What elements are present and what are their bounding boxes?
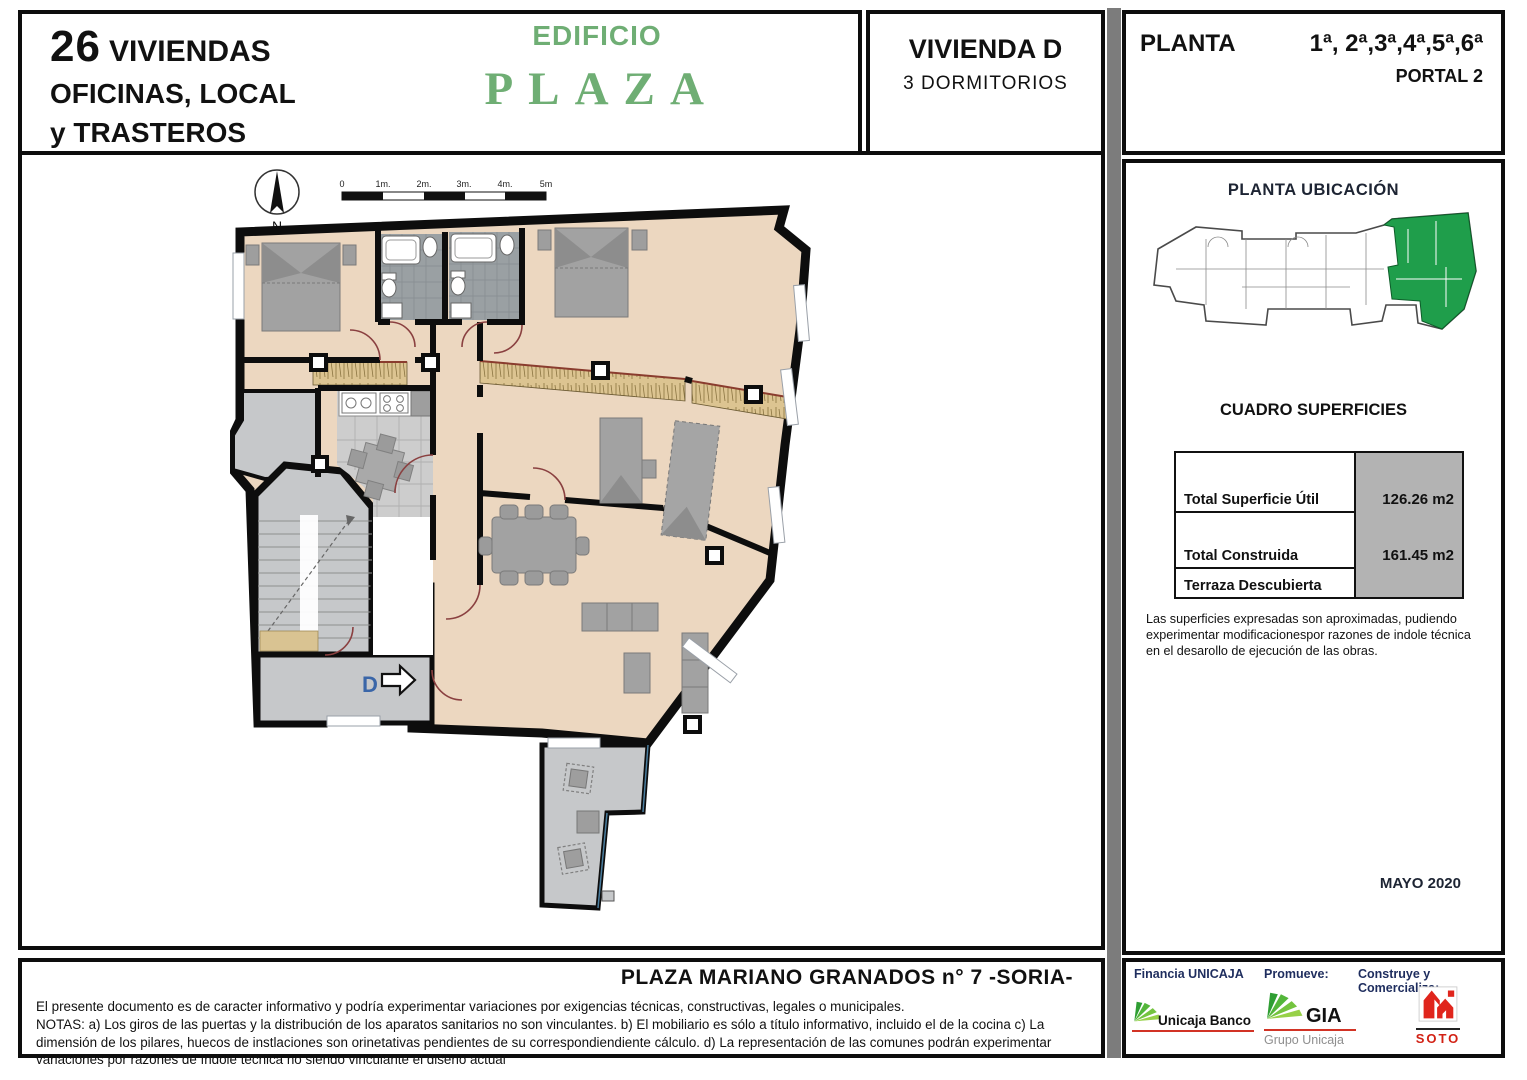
terrace-drain bbox=[602, 891, 614, 901]
surfaces-title: CUADRO SUPERFICIES bbox=[1126, 401, 1501, 420]
svg-text:4m.: 4m. bbox=[497, 179, 512, 189]
portal-label: PORTAL 2 bbox=[1126, 58, 1501, 87]
location-title: PLANTA UBICACIÓN bbox=[1126, 181, 1501, 200]
unicaja-banco-logo: Unicaja Banco bbox=[1132, 998, 1254, 1032]
financia-label: Financia UNICAJA bbox=[1134, 967, 1244, 981]
svg-text:0: 0 bbox=[339, 179, 344, 189]
project-line2: OFICINAS, LOCAL bbox=[50, 79, 296, 108]
header-project-box: 26VIVIENDAS OFICINAS, LOCAL y TRASTEROS … bbox=[18, 10, 862, 155]
project-line1: VIVIENDAS bbox=[109, 35, 271, 68]
bathroom-2 bbox=[449, 232, 520, 320]
plan-sheet: 26VIVIENDAS OFICINAS, LOCAL y TRASTEROS … bbox=[0, 0, 1527, 1080]
soto-name: SOTO bbox=[1416, 1028, 1461, 1046]
unicaja-underline bbox=[1132, 1030, 1254, 1032]
header-floor-box: PLANTA 1ª, 2ª,3ª,4ª,5ª,6ª PORTAL 2 bbox=[1122, 10, 1505, 155]
svg-text:2m.: 2m. bbox=[416, 179, 431, 189]
gia-subname: Grupo Unicaja bbox=[1264, 1033, 1356, 1047]
unicaja-name: Unicaja Banco bbox=[1158, 1013, 1254, 1028]
promueve-label: Promueve: bbox=[1264, 967, 1329, 981]
location-minimap bbox=[1146, 207, 1486, 372]
building-word-plaza: PLAZA bbox=[451, 62, 752, 116]
footer-address-box: PLAZA MARIANO GRANADOS n° 7 -SORIA- El p… bbox=[18, 958, 1105, 1058]
building-title: EDIFICIO PLAZA bbox=[442, 20, 752, 116]
surfaces-table: Total Superficie Útil Total Construida T… bbox=[1174, 451, 1464, 599]
floorplan-box: N 0 1m. 2m. 3m. 4m. 5m bbox=[18, 151, 1105, 950]
floorplan-drawing: N 0 1m. 2m. 3m. 4m. 5m bbox=[230, 165, 1110, 950]
credits-box: Financia UNICAJA Promueve: Construye y C… bbox=[1122, 958, 1505, 1058]
scale-bar: 0 1m. 2m. 3m. 4m. 5m bbox=[339, 179, 552, 200]
svg-text:1m.: 1m. bbox=[375, 179, 390, 189]
project-title: 26VIVIENDAS OFICINAS, LOCAL y TRASTEROS bbox=[50, 24, 296, 147]
floor-values: 1ª, 2ª,3ª,4ª,5ª,6ª bbox=[1310, 30, 1483, 58]
toilet bbox=[382, 279, 396, 297]
surface-row-terraza-label: Terraza Descubierta bbox=[1176, 569, 1354, 597]
bedroom-1-bed bbox=[246, 243, 356, 331]
soto-logo: SOTO bbox=[1408, 986, 1468, 1048]
disclaimer-notes: NOTAS: a) Los giros de las puertas y la … bbox=[36, 1016, 1087, 1069]
surface-row-util-label: Total Superficie Útil bbox=[1176, 453, 1354, 513]
site-address: PLAZA MARIANO GRANADOS n° 7 -SORIA- bbox=[621, 966, 1073, 990]
gia-name: GIA bbox=[1306, 1005, 1356, 1028]
surfaces-note: Las superficies expresadas son aproximad… bbox=[1146, 611, 1485, 659]
bath-sink bbox=[451, 303, 471, 318]
disclaimer-text: El presente documento es de caracter inf… bbox=[36, 998, 1087, 1069]
north-arrow: N bbox=[255, 170, 299, 234]
project-count: 26 bbox=[50, 22, 101, 71]
unit-bedrooms: 3 DORMITORIOS bbox=[870, 73, 1101, 95]
terrace-table bbox=[577, 811, 599, 833]
washbasin bbox=[423, 237, 437, 257]
gia-underline bbox=[1264, 1029, 1356, 1031]
bath-sink bbox=[382, 303, 402, 318]
svg-text:5m: 5m bbox=[540, 179, 553, 189]
bathroom-1 bbox=[380, 234, 443, 320]
building-word-edificio: EDIFICIO bbox=[442, 20, 752, 52]
soto-arrows-icon bbox=[1418, 986, 1458, 1022]
surface-util-value: 126.26 m2 bbox=[1382, 491, 1454, 508]
panel-divider bbox=[1107, 8, 1121, 1058]
plan-date: MAYO 2020 bbox=[1380, 875, 1461, 892]
unit-letter-label: D bbox=[362, 672, 378, 697]
sidebar-panel: PLANTA UBICACIÓN CUADRO SUPERFICIES Tota… bbox=[1122, 159, 1505, 955]
surfaces-values-column: 126.26 m2 161.45 m2 bbox=[1354, 453, 1462, 597]
svg-text:3m.: 3m. bbox=[456, 179, 471, 189]
gia-logo: GIA Grupo Unicaja bbox=[1264, 988, 1356, 1047]
project-line3: y TRASTEROS bbox=[50, 118, 296, 147]
unit-name: VIVIENDA D bbox=[870, 34, 1101, 65]
washbasin bbox=[500, 235, 514, 255]
surface-row-construida-label: Total Construida bbox=[1176, 513, 1354, 569]
floor-label: PLANTA bbox=[1140, 30, 1236, 58]
dining-set bbox=[479, 505, 589, 585]
gia-fan-icon bbox=[1264, 988, 1304, 1022]
kitchen-fridge bbox=[411, 391, 432, 416]
header-unit-box: VIVIENDA D 3 DORMITORIOS bbox=[866, 10, 1105, 155]
toilet bbox=[451, 277, 465, 295]
surface-construida-value: 161.45 m2 bbox=[1382, 547, 1454, 564]
terrace bbox=[542, 745, 648, 908]
inner-hall-floor bbox=[373, 517, 433, 655]
disclaimer-intro: El presente documento es de caracter inf… bbox=[36, 998, 1087, 1016]
